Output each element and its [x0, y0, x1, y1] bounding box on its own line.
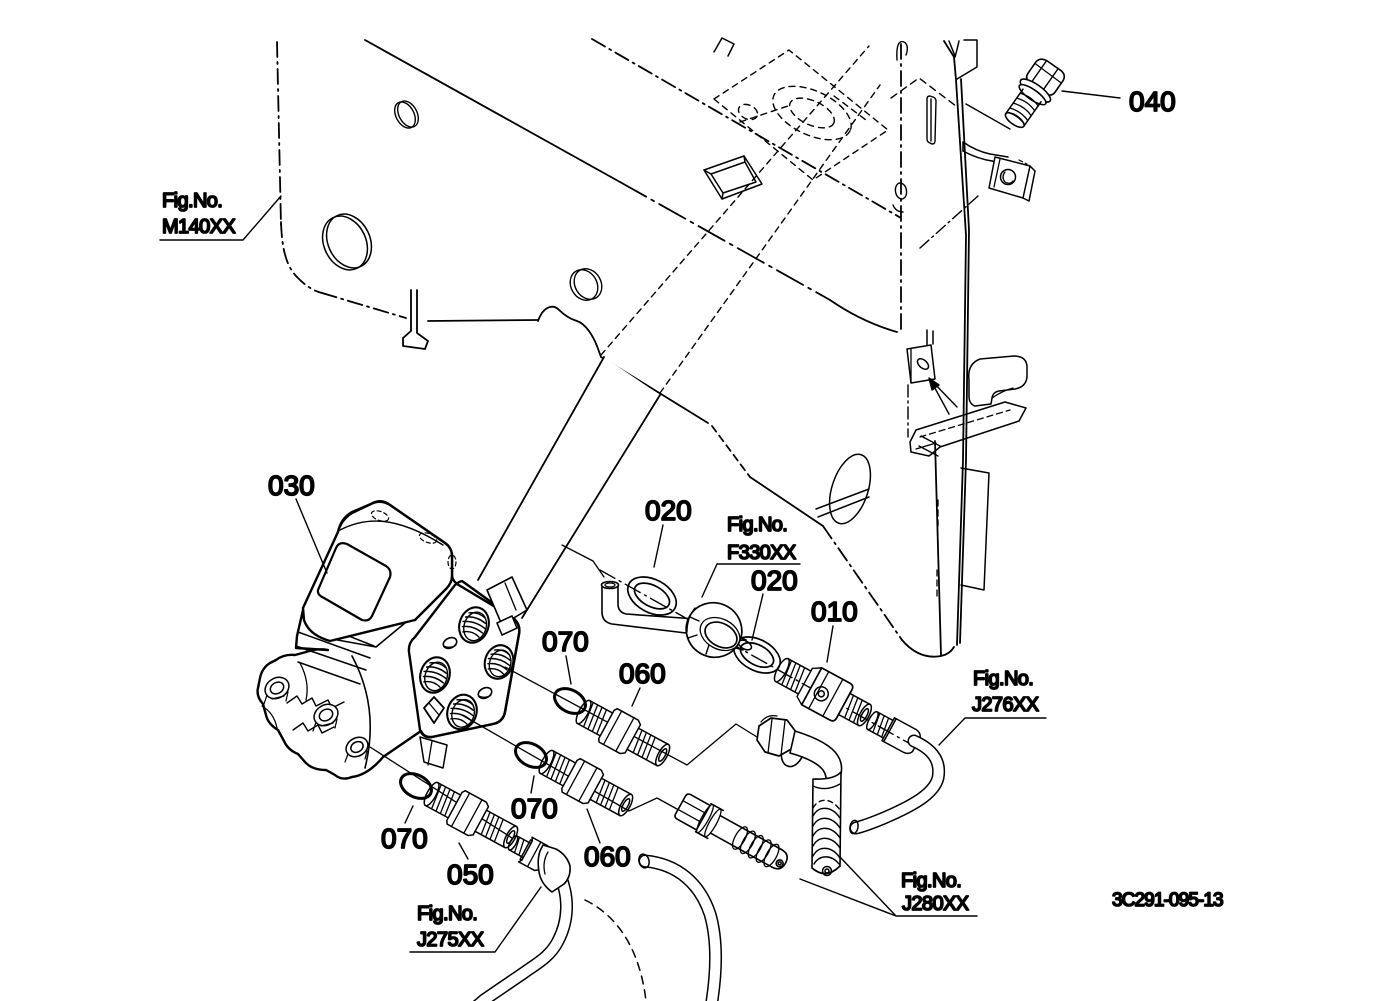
svg-text:070: 070: [511, 793, 558, 824]
svg-text:070: 070: [381, 823, 428, 854]
svg-text:020: 020: [751, 565, 798, 596]
svg-text:F330XX: F330XX: [727, 542, 796, 564]
svg-text:030: 030: [268, 470, 315, 501]
svg-text:060: 060: [619, 658, 666, 689]
svg-text:040: 040: [1129, 86, 1176, 117]
svg-text:3C291-095-13: 3C291-095-13: [1112, 890, 1223, 911]
svg-text:J280XX: J280XX: [902, 893, 969, 915]
svg-text:Fig.No.: Fig.No.: [727, 514, 787, 536]
svg-text:Fig.No.: Fig.No.: [417, 903, 477, 925]
svg-text:050: 050: [447, 859, 494, 890]
svg-text:010: 010: [811, 596, 858, 627]
svg-text:060: 060: [584, 841, 631, 872]
svg-text:070: 070: [542, 626, 589, 657]
svg-text:Fig.No.: Fig.No.: [901, 870, 961, 892]
svg-text:Fig.No.: Fig.No.: [162, 190, 222, 212]
svg-text:J275XX: J275XX: [417, 929, 484, 951]
svg-text:020: 020: [645, 495, 692, 526]
svg-text:Fig.No.: Fig.No.: [973, 668, 1033, 690]
svg-text:M140XX: M140XX: [162, 216, 235, 238]
svg-text:J276XX: J276XX: [972, 694, 1039, 716]
